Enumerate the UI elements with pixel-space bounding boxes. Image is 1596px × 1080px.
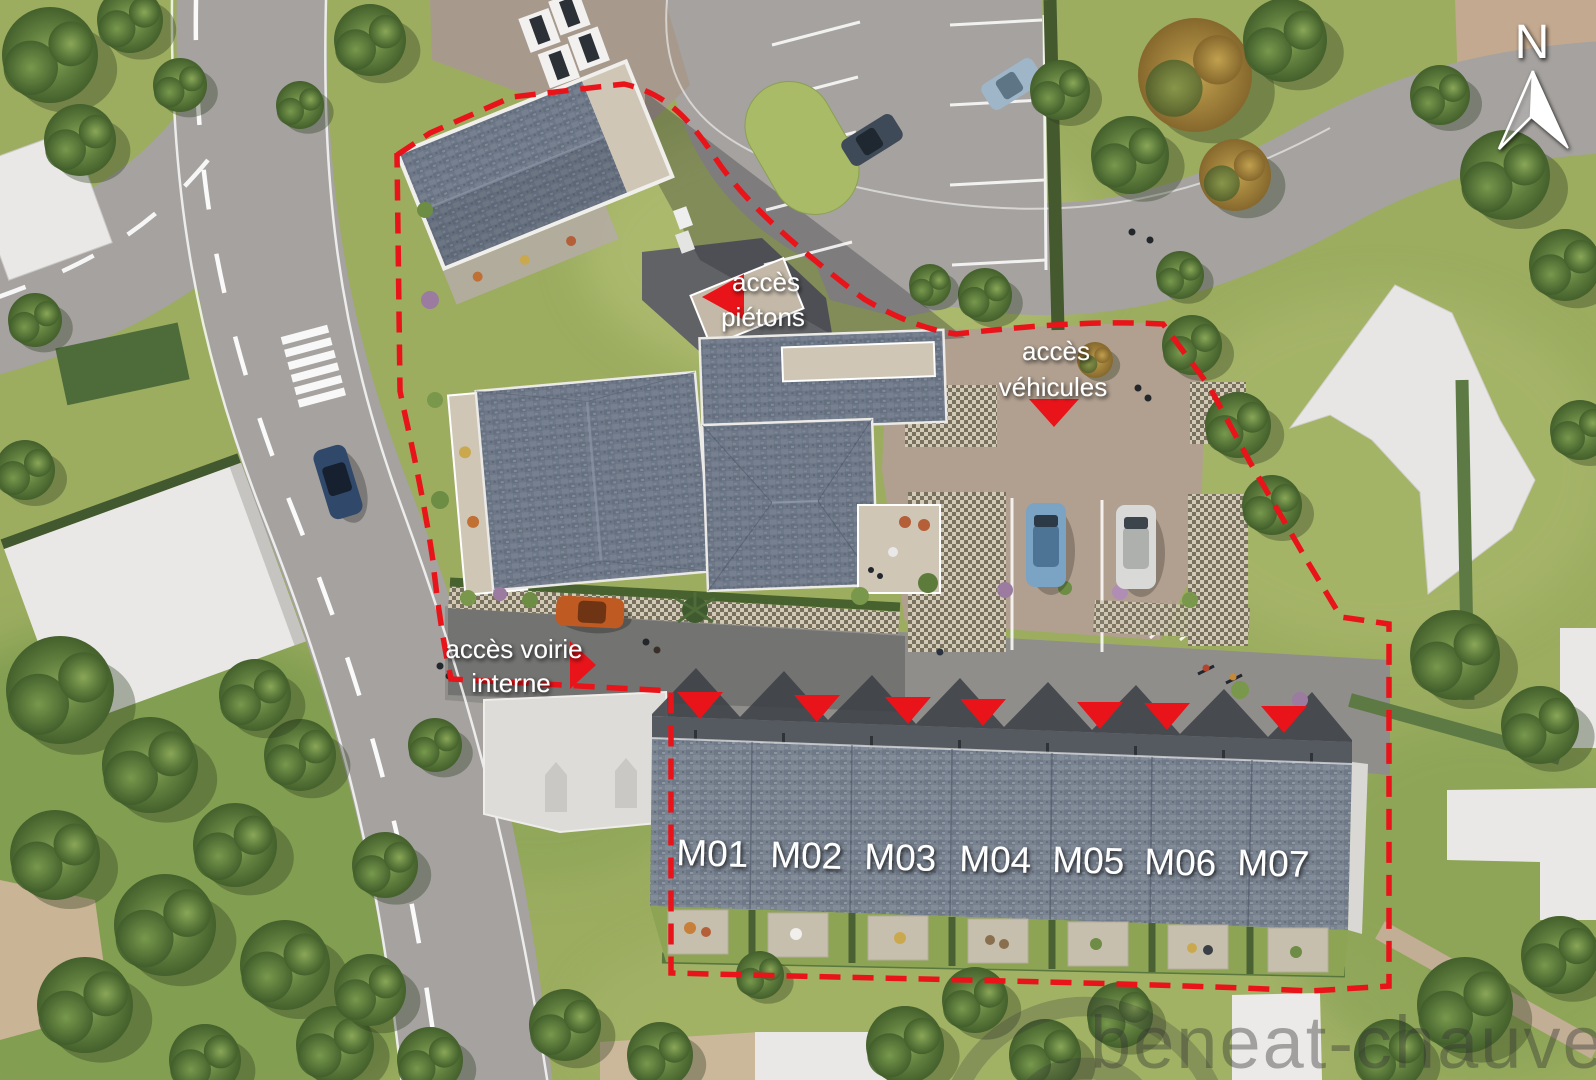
building-c-north-wing xyxy=(699,330,946,430)
townhouse-roof xyxy=(650,738,1352,930)
building-b xyxy=(448,372,713,595)
unit-label-m05: M05 xyxy=(1052,839,1125,882)
watermark-text: beneat-chauvel.com xyxy=(1090,1001,1596,1080)
vehicle-access-label-line1: accès xyxy=(1022,336,1090,366)
pedestrian-access-label-line1: accès xyxy=(732,267,800,297)
unit-label-m01: M01 xyxy=(676,832,749,875)
internal-road-access-label-line2: interne xyxy=(471,668,551,698)
unit-label-m06: M06 xyxy=(1144,841,1217,884)
aerial-site-plan: accès piétons accès véhicules accès voir… xyxy=(0,0,1596,1080)
pedestrian-access-label-line2: piétons xyxy=(721,302,805,332)
existing-building-gabled xyxy=(484,692,670,832)
site-plan-canvas: accès piétons accès véhicules accès voir… xyxy=(0,0,1596,1080)
unit-label-m03: M03 xyxy=(864,836,937,879)
north-label: N xyxy=(1515,16,1550,69)
unit-label-m07: M07 xyxy=(1237,842,1310,885)
unit-label-m02: M02 xyxy=(770,834,843,877)
internal-road-access-label-line1: accès voirie xyxy=(445,634,582,664)
unit-label-m04: M04 xyxy=(959,838,1032,881)
building-c-patio xyxy=(858,505,940,593)
building-c-south-wing xyxy=(702,419,878,591)
vehicle-access-label-line2: véhicules xyxy=(999,372,1107,402)
